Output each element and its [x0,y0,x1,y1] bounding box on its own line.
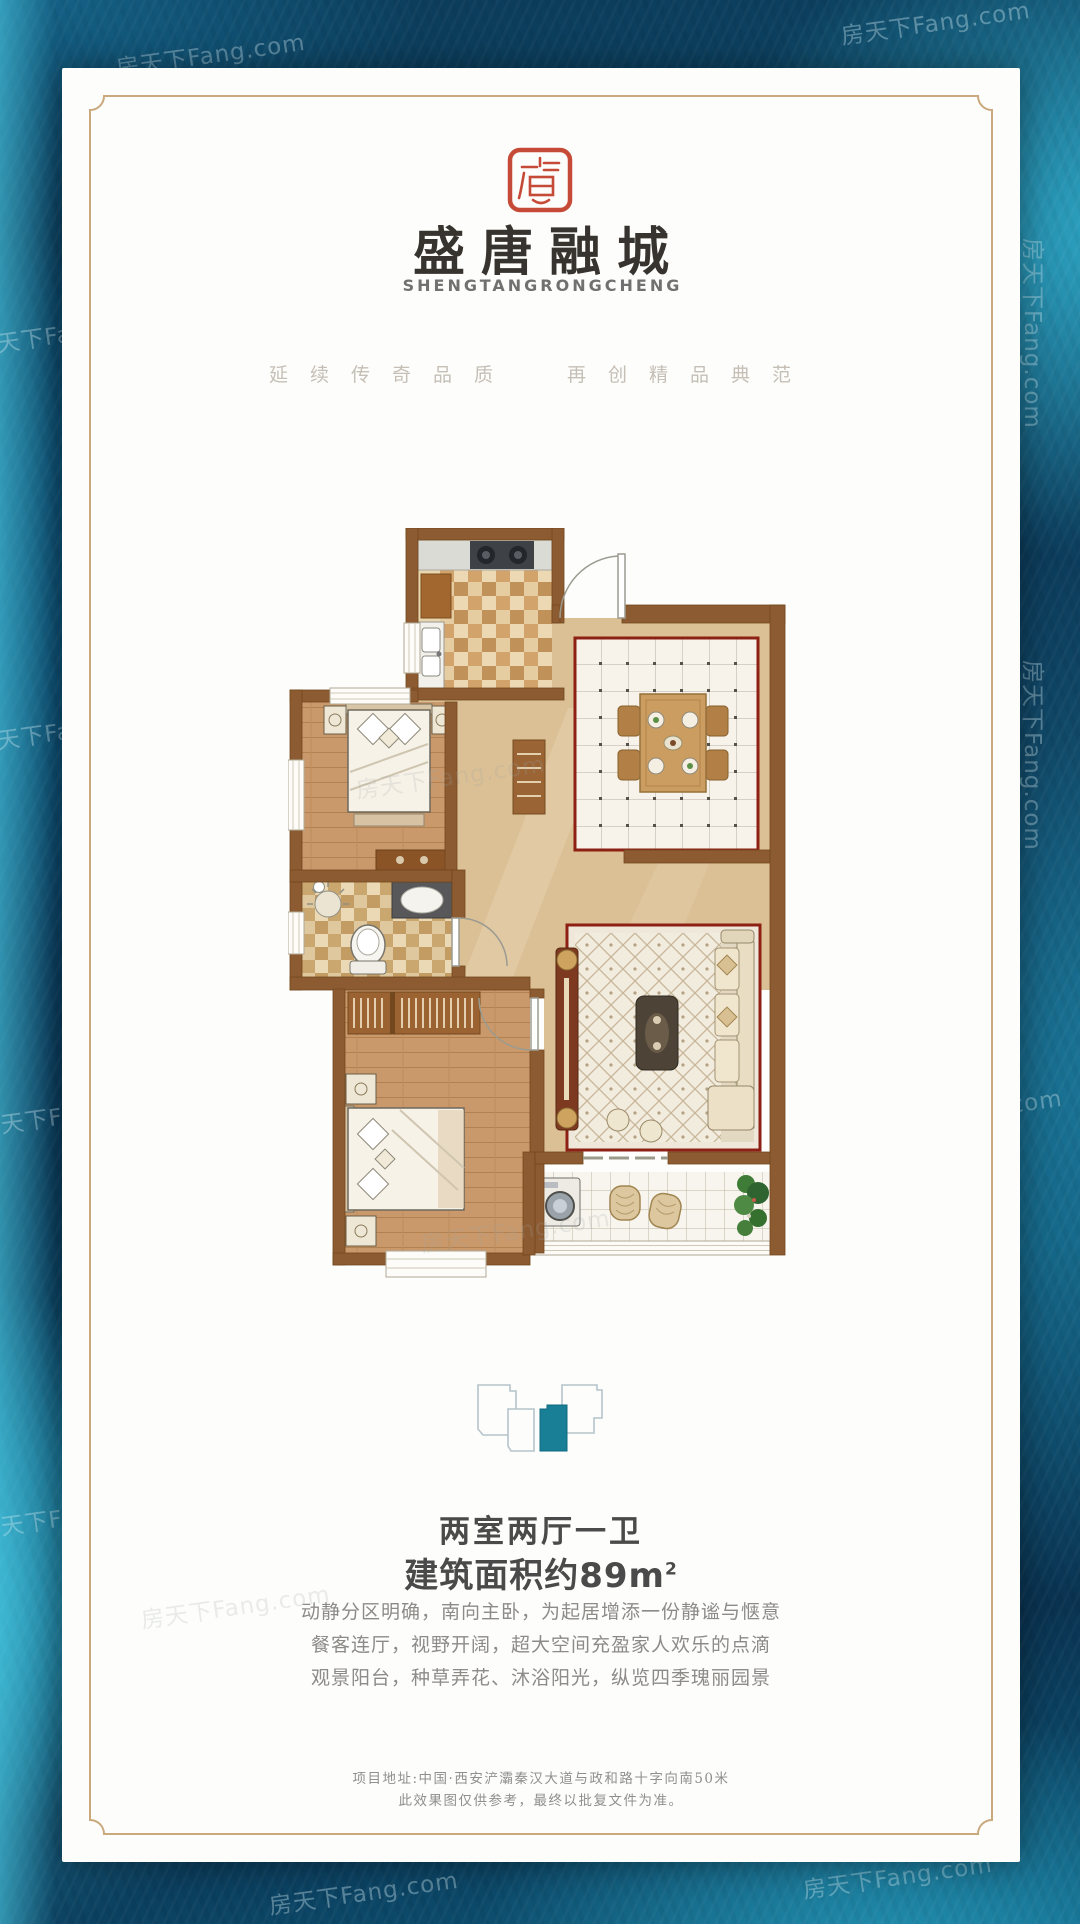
building-outline [562,1385,602,1433]
master-door-leaf [531,998,538,1050]
dining-room [575,638,758,850]
building-outline [508,1409,534,1451]
brand-tagline: 延续传奇品质 再创精品典范 [62,360,1020,387]
floorplan-image [288,528,788,1293]
unit-description: 动静分区明确，南向主卧，为起居增添一份静谧与惬意 餐客连厅，视野开阔，超大空间充… [62,1596,1020,1695]
description-line: 餐客连厅，视野开阔，超大空间充盈家人欢乐的点滴 [62,1629,1020,1662]
unit-area-text: 建筑面积约89m [404,1556,665,1596]
building-position-diagram [470,1380,610,1456]
description-line: 动静分区明确，南向主卧，为起居增添一份静谧与惬意 [62,1596,1020,1629]
living-room [556,925,760,1150]
bathroom-door-leaf [452,918,459,966]
brand-name-en: SHENGTANGRONGCHENG [62,276,1020,295]
project-address: 项目地址:中国·西安浐灞秦汉大道与政和路十字向南50米 [62,1768,1020,1790]
poster-card: 盛唐融城 SHENGTANGRONGCHENG 延续传奇品质 再创精品典范 [62,68,1020,1862]
unit-highlight [540,1405,567,1451]
bathroom [302,881,452,977]
second-bedroom [302,702,452,870]
tagline-left: 延续传奇品质 [269,360,515,387]
footer-notes: 项目地址:中国·西安浐灞秦汉大道与政和路十字向南50米 此效果图仅供参考，最终以… [62,1768,1020,1812]
balcony [535,1172,770,1255]
background-left-glow [0,0,56,1924]
brand-name-cn: 盛唐融城 [62,210,1020,285]
kitchen [418,540,552,688]
entry-door-leaf [618,554,625,618]
disclaimer: 此效果图仅供参考，最终以批复文件为准。 [62,1790,1020,1812]
unit-area-sup: 2 [665,1560,678,1580]
tagline-right: 再创精品典范 [567,360,813,387]
brand-seal-icon [507,147,573,213]
entry-door-swing [560,556,618,618]
unit-area: 建筑面积约89m2 [62,1548,1020,1597]
description-line: 观景阳台，种草弄花、沐浴阳光，纵览四季瑰丽园景 [62,1662,1020,1695]
poster: 房天下Fang.com 房天下Fang.com 房天下Fang.com 房天下F… [0,0,1080,1924]
unit-layout-title: 两室两厅一卫 [62,1506,1020,1551]
master-bedroom [344,989,530,1253]
